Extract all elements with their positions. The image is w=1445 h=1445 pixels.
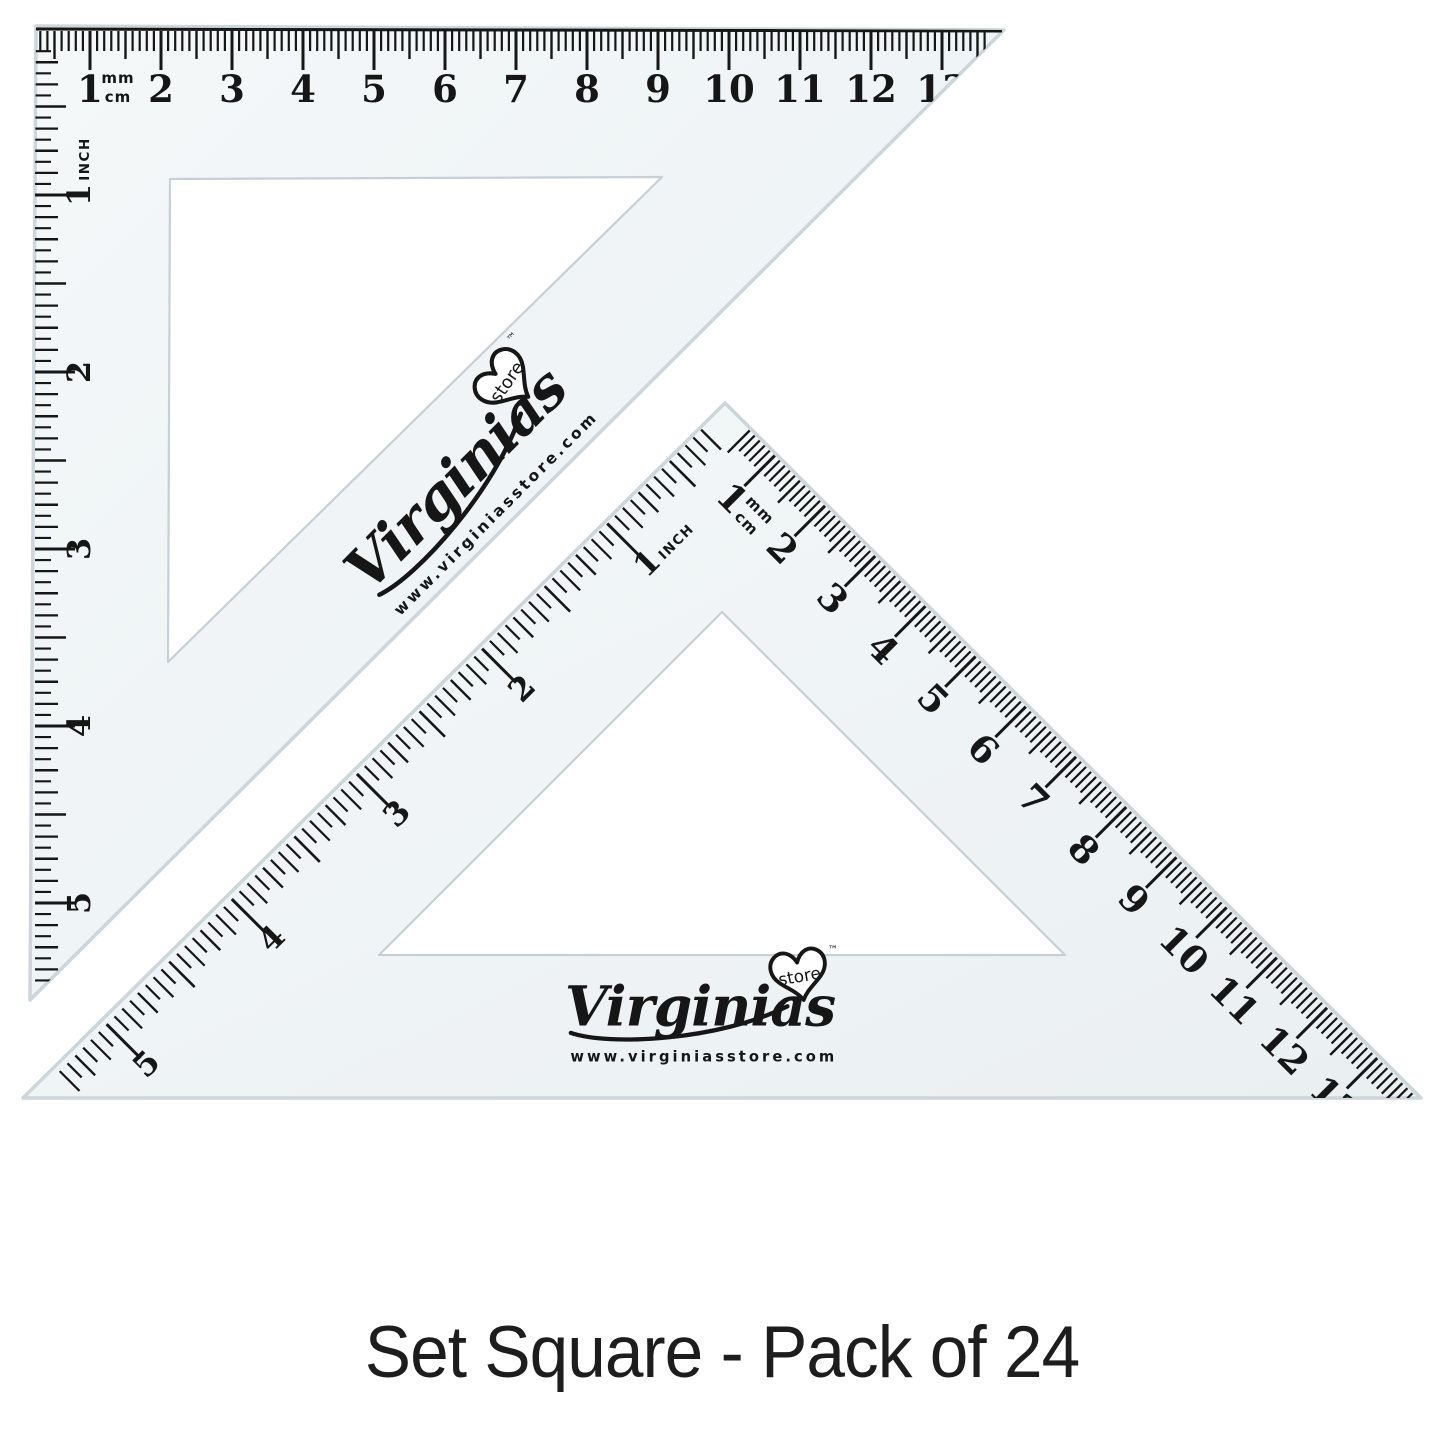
t1-cm-scale-label: 3 — [219, 67, 245, 111]
t1-cm-scale-label: 4 — [290, 67, 316, 111]
t1-inch-scale-number: 3 — [60, 538, 98, 560]
t1-cm-scale-number: 5 — [361, 67, 387, 111]
t1-cm-scale-label: 11 — [774, 67, 826, 111]
t1-cm-scale-number: 13 — [916, 67, 968, 111]
t1-cm-scale-number: 10 — [703, 67, 755, 111]
t1-cm-scale-number: 9 — [645, 67, 671, 111]
website-text: www.virginiasstore.com — [570, 1048, 837, 1065]
t1-cm-scale-number: 2 — [148, 67, 174, 111]
t1-inch-scale-label: 5 — [60, 892, 98, 914]
set-square-product-image: 1mmcm23456789101112131INCH2345Virginiass… — [0, 0, 1445, 1445]
t1-cm-scale-label: 6 — [432, 67, 458, 111]
t1-cm-scale-number: 7 — [503, 67, 529, 111]
t1-inch-scale-label: 4 — [60, 715, 98, 737]
t1-inch-scale-number: 4 — [60, 715, 98, 737]
t1-cm-scale-label: 12 — [845, 67, 897, 111]
t1-cm-scale-number: 12 — [845, 67, 897, 111]
t1-cm-scale-number: 11 — [774, 67, 826, 111]
t1-cm-scale-label: 7 — [503, 67, 529, 111]
unit-cm-label: cm — [105, 88, 132, 106]
t1-cm-scale-number: 1 — [77, 67, 103, 111]
t1-cm-scale-number: 3 — [219, 67, 245, 111]
unit-inch-label: INCH — [77, 137, 93, 181]
t1-cm-scale-label: 10 — [703, 67, 755, 111]
t1-cm-scale-label: 2 — [148, 67, 174, 111]
t1-inch-scale-label: 3 — [60, 538, 98, 560]
product-caption: Set Square - Pack of 24 — [0, 1294, 1445, 1410]
t1-cm-scale-label: 13 — [916, 67, 968, 111]
t1-cm-scale-number: 8 — [574, 67, 600, 111]
t1-inch-scale-label: 2 — [60, 361, 98, 383]
unit-mm-label: mm — [101, 69, 134, 87]
t1-cm-scale-label: 9 — [645, 67, 671, 111]
product-photo: 1mmcm23456789101112131INCH2345Virginiass… — [0, 0, 1445, 1445]
t1-cm-scale-label: 5 — [361, 67, 387, 111]
t1-inch-scale-number: 1 — [60, 184, 98, 206]
t1-inch-scale-number: 5 — [60, 892, 98, 914]
t1-cm-scale-label: 1mmcm — [77, 67, 135, 111]
t1-cm-scale-number: 4 — [290, 67, 316, 111]
product-caption-text: Set Square - Pack of 24 — [365, 1311, 1079, 1394]
trademark-symbol: ™ — [828, 944, 838, 956]
t1-inch-scale-number: 2 — [60, 361, 98, 383]
t1-cm-scale-label: 8 — [574, 67, 600, 111]
t1-cm-scale-number: 6 — [432, 67, 458, 111]
